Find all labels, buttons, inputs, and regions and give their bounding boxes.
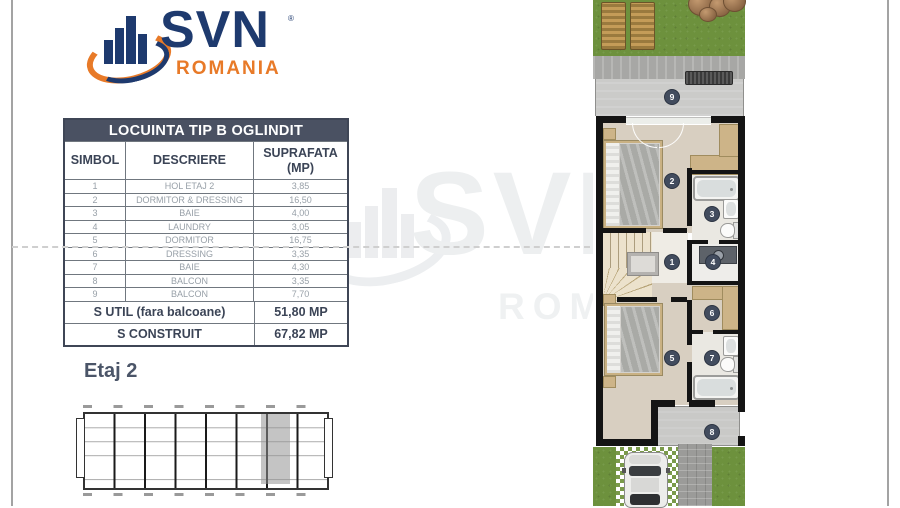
- header-suprafata-line1: SUPRAFATA: [263, 146, 338, 160]
- logo-bar: [138, 34, 147, 64]
- header-suprafata-line2: (MP): [287, 161, 314, 175]
- room-marker-5: 5: [664, 350, 680, 366]
- room-marker-7: 7: [704, 350, 720, 366]
- toilet: [720, 223, 735, 238]
- cell-area: 3,35: [254, 248, 347, 261]
- wall: [689, 400, 715, 407]
- header-descriere: DESCRIERE: [125, 142, 254, 179]
- sink-basin: [726, 339, 736, 353]
- cell-descriere: DRESSING: [125, 248, 254, 261]
- cell-simbol: 7: [65, 261, 125, 274]
- overview-outline: [83, 412, 329, 490]
- dimension-ticks-bottom: [83, 493, 327, 496]
- summary-value: 67,82 MP: [255, 324, 347, 345]
- registered-mark: ®: [288, 14, 294, 23]
- cell-area: 3,35: [254, 275, 347, 288]
- cell-simbol: 5: [65, 234, 125, 247]
- garden-grass-bottom-right: [712, 447, 745, 506]
- cell-area: 4,00: [254, 207, 347, 220]
- wall-right: [738, 116, 745, 408]
- header-simbol: SIMBOL: [65, 142, 125, 179]
- table-row: 5DORMITOR16,75: [65, 233, 347, 247]
- cell-simbol: 4: [65, 221, 125, 234]
- cell-area: 16,75: [254, 234, 347, 247]
- balcon-8: [657, 406, 740, 446]
- logo-region-text: ROMANIA: [176, 58, 281, 80]
- rock: [699, 7, 717, 22]
- summary-label: S UTIL (fara balcoane): [65, 302, 255, 323]
- toilet: [720, 357, 735, 372]
- cell-descriere: LAUNDRY: [125, 221, 254, 234]
- table-title: LOCUINTA TIP B OGLINDIT: [65, 120, 347, 141]
- area-table: LOCUINTA TIP B OGLINDIT SIMBOL DESCRIERE…: [63, 118, 349, 347]
- room-floor-lower: [602, 400, 652, 442]
- wall: [738, 436, 745, 446]
- cell-area: 4,30: [254, 261, 347, 274]
- cell-area: 7,70: [254, 288, 347, 301]
- wall: [689, 330, 703, 334]
- nightstand: [603, 376, 616, 388]
- overview-end-cap-right: [324, 418, 333, 478]
- car-windshield: [629, 466, 661, 476]
- cell-descriere: HOL ETAJ 2: [125, 180, 254, 193]
- watermark-bar: [348, 222, 361, 258]
- bathtub-drain: [730, 188, 733, 191]
- cell-simbol: 2: [65, 194, 125, 207]
- wall: [689, 170, 739, 174]
- sink: [723, 199, 739, 219]
- wall: [687, 300, 692, 345]
- logo-bar: [126, 16, 136, 64]
- room-marker-9: 9: [664, 89, 680, 105]
- nightstand: [603, 128, 616, 140]
- cell-descriere: DORMITOR: [125, 234, 254, 247]
- cell-descriere: DORMITOR & DRESSING: [125, 194, 254, 207]
- room-marker-8: 8: [704, 424, 720, 440]
- watermark-dashed-line: [12, 246, 590, 248]
- car-rear-window: [630, 494, 660, 505]
- wall: [713, 330, 739, 334]
- blanket: [621, 307, 659, 372]
- svn-logo-icon: [92, 10, 162, 76]
- car-roof: [631, 478, 659, 492]
- wall: [719, 240, 739, 244]
- hall-cabinet-top: [631, 256, 655, 272]
- room-marker-6: 6: [704, 305, 720, 321]
- room-marker-4: 4: [705, 254, 721, 270]
- cell-simbol: 9: [65, 288, 125, 301]
- summary-value: 51,80 MP: [255, 302, 347, 323]
- sink-basin: [726, 202, 736, 216]
- page-border-left: [11, 0, 13, 506]
- logo-bar: [104, 40, 113, 64]
- wall: [596, 228, 646, 233]
- bathtub-drain: [730, 387, 733, 390]
- wall: [738, 400, 745, 412]
- bench: [685, 71, 733, 85]
- wall: [687, 240, 692, 285]
- wall: [687, 362, 692, 402]
- bed: [604, 303, 663, 376]
- cell-descriere: BAIE: [125, 207, 254, 220]
- overview-end-cap-left: [76, 418, 85, 478]
- car: [624, 452, 668, 508]
- bathtub: [693, 375, 740, 400]
- table-row: 7BAIE4,30: [65, 260, 347, 274]
- watermark-bar: [365, 206, 378, 258]
- wall: [689, 281, 739, 285]
- cell-descriere: BALCON: [125, 275, 254, 288]
- bed: [603, 140, 663, 229]
- wall: [596, 439, 654, 446]
- dimension-ticks-top: [83, 405, 327, 408]
- sink: [723, 336, 739, 356]
- table-row: 9BALCON7,70: [65, 287, 347, 301]
- table-row: 1HOL ETAJ 23,85: [65, 179, 347, 193]
- svn-romania-logo: SVN ® ROMANIA: [92, 6, 302, 84]
- bathtub: [693, 176, 740, 201]
- wall: [671, 297, 687, 302]
- summary-label: S CONSTRUIT: [65, 324, 255, 345]
- sun-lounger: [630, 2, 655, 50]
- cell-descriere: BAIE: [125, 261, 254, 274]
- room-marker-3: 3: [704, 206, 720, 222]
- cell-simbol: 3: [65, 207, 125, 220]
- floor-plan: 1 2 3 4 5 6 7 8 9: [593, 0, 745, 506]
- room-marker-2: 2: [664, 173, 680, 189]
- table-header-row: SIMBOL DESCRIERE SUPRAFATA (MP): [65, 141, 347, 179]
- garden-grass-bottom-left: [593, 447, 616, 506]
- cell-simbol: 6: [65, 248, 125, 261]
- wall: [651, 400, 675, 407]
- table-row: 4LAUNDRY3,05: [65, 220, 347, 234]
- cell-area: 16,50: [254, 194, 347, 207]
- table-row: 6DRESSING3,35: [65, 247, 347, 261]
- wardrobe: [719, 124, 740, 157]
- pillow: [607, 306, 620, 373]
- cell-simbol: 8: [65, 275, 125, 288]
- summary-row-construit: S CONSTRUIT 67,82 MP: [65, 323, 347, 345]
- wall: [617, 297, 657, 302]
- page-border-right: [887, 0, 889, 506]
- car-hood: [629, 455, 661, 464]
- cell-descriere: BALCON: [125, 288, 254, 301]
- wall: [689, 240, 708, 244]
- table-row: 2DORMITOR & DRESSING16,50: [65, 193, 347, 207]
- logo-bar: [115, 28, 124, 64]
- pillow: [606, 143, 619, 226]
- blanket: [620, 144, 659, 225]
- wall: [687, 168, 692, 226]
- wall: [663, 228, 687, 233]
- summary-row-util: S UTIL (fara balcoane) 51,80 MP: [65, 301, 347, 323]
- table-row: 3BAIE4,00: [65, 206, 347, 220]
- cell-area: 3,05: [254, 221, 347, 234]
- room-marker-1: 1: [664, 254, 680, 270]
- table-row: 8BALCON3,35: [65, 274, 347, 288]
- car-mirror: [666, 468, 670, 473]
- floor-label: Etaj 2: [84, 360, 137, 383]
- logo-brand-text: SVN: [160, 0, 270, 60]
- hall-cabinet: [627, 252, 659, 276]
- cell-area: 3,85: [254, 180, 347, 193]
- building-overview-plan: [75, 403, 332, 499]
- header-suprafata: SUPRAFATA (MP): [254, 142, 347, 179]
- walkway-pavers: [678, 444, 712, 506]
- car-mirror: [622, 468, 626, 473]
- sun-lounger: [601, 2, 626, 50]
- cell-simbol: 1: [65, 180, 125, 193]
- wall-left: [596, 116, 603, 446]
- highlighted-unit: [261, 414, 290, 484]
